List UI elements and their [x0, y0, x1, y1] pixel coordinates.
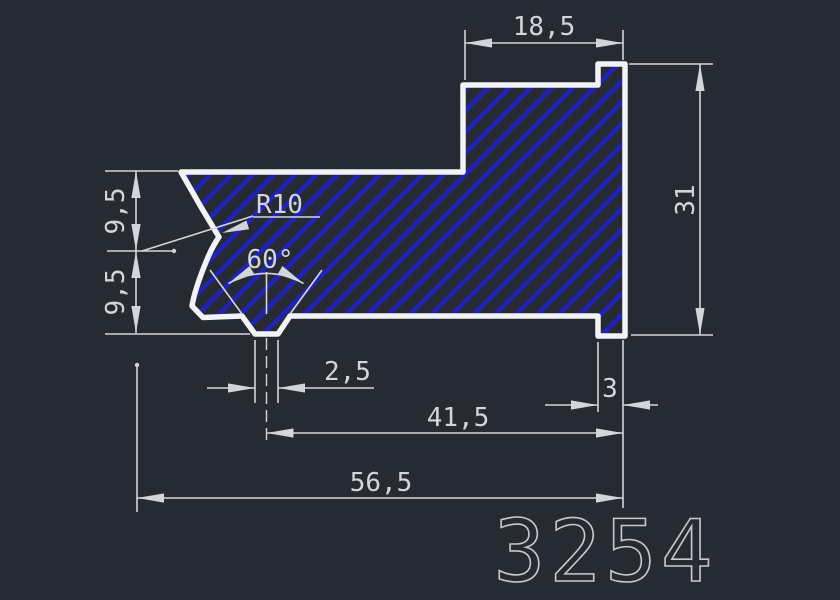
cad-drawing-canvas: 18,5 31 9,5 9,5 — [0, 0, 840, 600]
dim-label-right-height: 31 — [671, 184, 701, 215]
dim-label-overall-width: 56,5 — [350, 468, 413, 498]
dimension-arrow — [267, 428, 294, 437]
dim-label-tab-width: 2,5 — [324, 357, 371, 387]
dimension-arrow — [465, 38, 492, 47]
dimension-arrow — [571, 400, 598, 409]
dim-label-left-upper: 9,5 — [101, 188, 131, 235]
dim-overall-width: 56,5 — [135, 363, 623, 512]
dim-foot-width: 3 — [545, 342, 658, 412]
dimension-arrow — [695, 64, 704, 91]
dim-label-41-5: 41,5 — [427, 403, 490, 433]
technical-drawing: 18,5 31 9,5 9,5 — [0, 0, 840, 600]
part-number: 3254 — [493, 502, 716, 600]
dimension-arrow — [596, 38, 623, 47]
dim-label-foot-width: 3 — [602, 374, 618, 404]
dimension-arrow — [278, 383, 305, 392]
dim-label-left-lower: 9,5 — [101, 269, 131, 316]
dimension-arrow — [131, 251, 140, 278]
dimension-arrow — [131, 224, 140, 251]
dim-right-height: 31 — [629, 64, 713, 335]
dimension-arrow — [695, 308, 704, 335]
dim-label-radius: R10 — [256, 190, 303, 220]
dimension-arrow — [623, 400, 650, 409]
dimension-arrow — [131, 306, 140, 333]
reference-point — [135, 363, 139, 367]
dim-tab-center-to-right: 41,5 — [267, 403, 624, 438]
profile-outline — [181, 64, 625, 336]
dimension-arrow — [228, 383, 255, 392]
dim-label-top-width: 18,5 — [513, 12, 576, 42]
reference-point — [172, 249, 176, 253]
dimension-arrow — [596, 428, 623, 437]
dimension-arrow — [137, 493, 164, 502]
dim-left-upper: 9,5 — [101, 171, 178, 251]
dim-tab-width: 2,5 — [207, 340, 374, 403]
dimension-arrow — [131, 171, 140, 198]
